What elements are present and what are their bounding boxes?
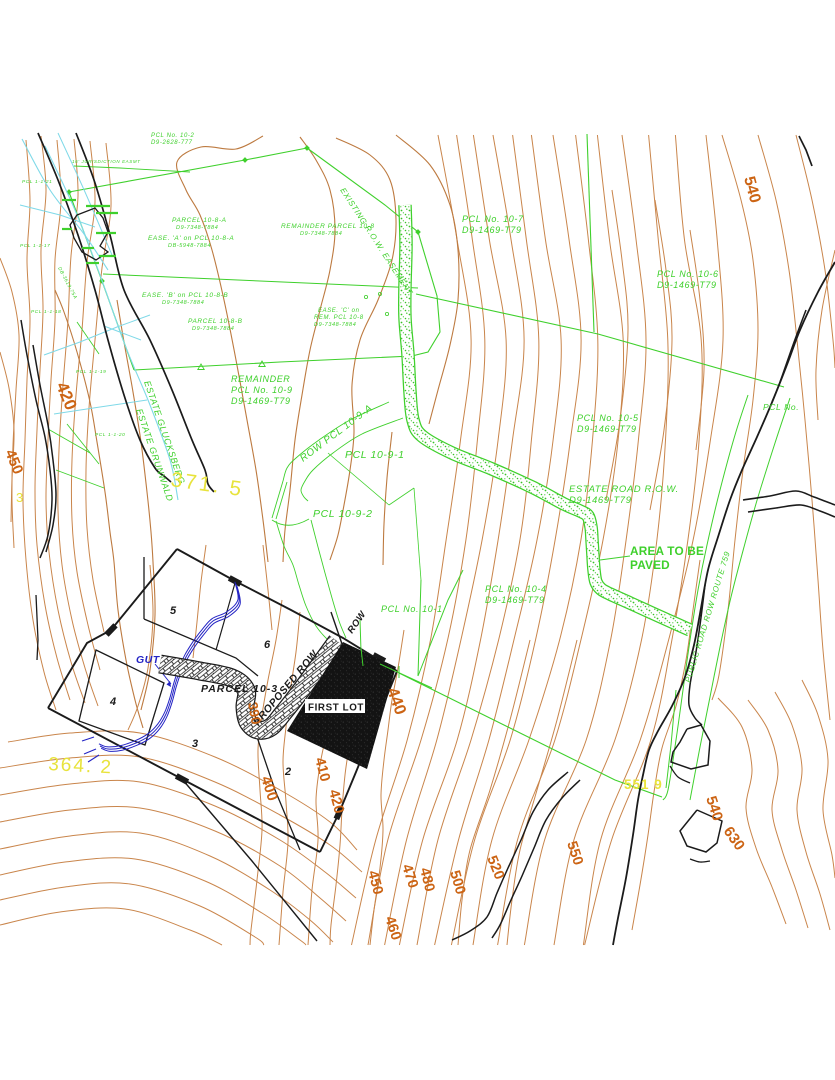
svg-text:ROW: ROW — [345, 609, 368, 636]
svg-text:PCL 10-9-2: PCL 10-9-2 — [313, 508, 373, 520]
svg-text:3: 3 — [192, 738, 199, 750]
svg-text:D9-7348-7884: D9-7348-7884 — [162, 300, 204, 306]
svg-text:D9-7348-7884: D9-7348-7884 — [300, 231, 342, 237]
svg-text:PCL No. 10-6: PCL No. 10-6 — [657, 269, 719, 279]
svg-text:3: 3 — [16, 490, 24, 505]
svg-text:420: 420 — [52, 379, 80, 412]
svg-text:551 9: 551 9 — [624, 777, 663, 792]
svg-text:PAVED: PAVED — [630, 558, 670, 572]
svg-text:540: 540 — [702, 794, 726, 823]
svg-text:PCL No. 10-5: PCL No. 10-5 — [577, 413, 639, 423]
svg-text:480: 480 — [416, 866, 437, 893]
svg-text:EASE. 'B' on PCL 10-8-B: EASE. 'B' on PCL 10-8-B — [142, 292, 228, 299]
svg-text:540: 540 — [740, 175, 763, 205]
svg-text:DB-3619-75A: DB-3619-75A — [56, 266, 78, 300]
svg-text:PCL 1-1-19: PCL 1-1-19 — [76, 369, 106, 375]
svg-text:EASE. 'C' on: EASE. 'C' on — [318, 308, 360, 314]
svg-text:4: 4 — [109, 696, 117, 708]
svg-text:450: 450 — [1, 447, 26, 477]
svg-text:PCL No.: PCL No. — [763, 402, 799, 412]
svg-text:PCL 1-1-18: PCL 1-1-18 — [31, 309, 61, 315]
svg-text:PCL 1-1-17: PCL 1-1-17 — [20, 243, 50, 249]
svg-text:450: 450 — [364, 869, 386, 897]
svg-text:371. 5: 371. 5 — [169, 468, 245, 501]
svg-text:PCL 1-1-21: PCL 1-1-21 — [22, 179, 52, 185]
svg-text:6: 6 — [264, 639, 271, 651]
svg-text:2: 2 — [284, 766, 292, 778]
svg-text:AREA TO BE: AREA TO BE — [630, 544, 704, 558]
svg-text:GUT: GUT — [136, 654, 161, 666]
svg-text:440: 440 — [383, 685, 409, 717]
svg-text:364. 2: 364. 2 — [48, 754, 114, 778]
svg-text:550: 550 — [563, 839, 586, 867]
svg-text:16' JURISDICTION EASMT: 16' JURISDICTION EASMT — [72, 159, 141, 164]
svg-text:630: 630 — [720, 824, 748, 854]
svg-text:FIRST LOT: FIRST LOT — [308, 703, 364, 714]
svg-text:D9-7348-7884: D9-7348-7884 — [314, 322, 356, 328]
svg-text:470: 470 — [398, 862, 421, 890]
svg-text:D9-7348-7884: D9-7348-7884 — [192, 326, 234, 332]
svg-text:PARCEL 10-3: PARCEL 10-3 — [201, 683, 278, 695]
svg-text:PCL No. 10-2: PCL No. 10-2 — [151, 133, 195, 139]
svg-text:REMAINDER: REMAINDER — [231, 374, 290, 384]
svg-text:5: 5 — [170, 605, 177, 617]
svg-text:D9-1469-T79: D9-1469-T79 — [462, 225, 522, 235]
svg-text:D9-1469-T79: D9-1469-T79 — [569, 495, 632, 506]
svg-text:410: 410 — [311, 756, 333, 784]
svg-text:ESTATE ROAD R.O.W.: ESTATE ROAD R.O.W. — [569, 484, 679, 495]
svg-text:D9-1469-T79: D9-1469-T79 — [485, 595, 545, 605]
svg-text:PCL No. 10-9: PCL No. 10-9 — [231, 385, 293, 395]
svg-text:D9-1469-T79: D9-1469-T79 — [657, 280, 717, 290]
svg-text:500: 500 — [446, 869, 468, 897]
svg-text:D9-1469-T79: D9-1469-T79 — [577, 424, 637, 434]
svg-text:PCL No. 10-7: PCL No. 10-7 — [462, 214, 524, 224]
svg-text:PCL No. 10-4: PCL No. 10-4 — [485, 584, 547, 594]
svg-text:DB-5948-7884: DB-5948-7884 — [168, 243, 211, 249]
svg-text:PARCEL 10-8-A: PARCEL 10-8-A — [172, 217, 227, 224]
svg-text:EASE. 'A' on PCL 10-8-A: EASE. 'A' on PCL 10-8-A — [148, 235, 234, 242]
svg-text:PCL No. 10-1: PCL No. 10-1 — [381, 604, 443, 614]
svg-text:PCL 10-9-1: PCL 10-9-1 — [345, 449, 405, 461]
svg-text:D9-1469-T79: D9-1469-T79 — [231, 396, 291, 406]
svg-text:REM. PCL 10-8: REM. PCL 10-8 — [314, 315, 364, 321]
svg-text:PCL 1-1-20: PCL 1-1-20 — [95, 432, 125, 438]
svg-text:460: 460 — [381, 914, 404, 942]
svg-text:D9-2628-777: D9-2628-777 — [151, 140, 193, 146]
svg-text:D9-7348-7884: D9-7348-7884 — [176, 225, 218, 231]
svg-text:PARCEL 10-8-B: PARCEL 10-8-B — [188, 318, 243, 325]
